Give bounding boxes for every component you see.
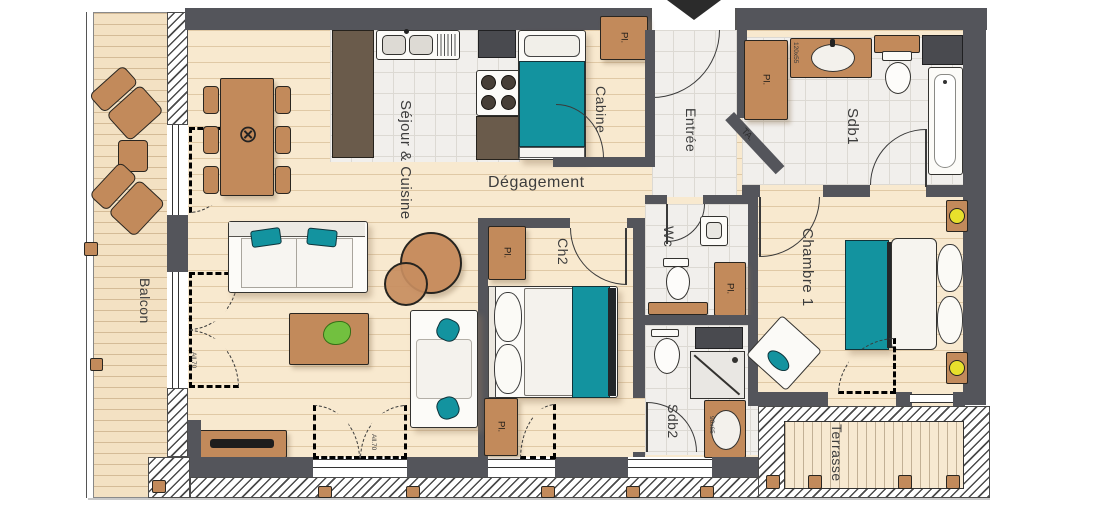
wall (188, 457, 313, 477)
post (626, 486, 640, 498)
wall (185, 8, 652, 30)
room-label-balcon: Balcon (138, 278, 152, 324)
plant (323, 321, 351, 345)
bed-blanket (845, 240, 889, 350)
sofa-bed (410, 310, 478, 428)
floor-plan: Pl. Cabine TA. Entrée Pl. 120x55 Sdb1 Dé… (0, 0, 1100, 510)
pillow (937, 296, 963, 344)
plan-boundary (88, 498, 990, 500)
lamp (949, 360, 965, 376)
toilet-tank (882, 51, 912, 61)
ceiling-light-icon: ⊗ (234, 120, 262, 149)
door-jamb (650, 8, 652, 30)
bathtub (928, 67, 963, 175)
wall (953, 392, 965, 406)
wall (645, 315, 758, 325)
sofa-back (229, 222, 365, 237)
room-label-cabine: Cabine (594, 86, 608, 133)
pillow (937, 244, 963, 292)
sink (811, 44, 855, 72)
closet-label: Pl. (725, 283, 736, 294)
wall (555, 457, 628, 477)
room-label-entree: Entrée (684, 108, 698, 152)
faucet (830, 39, 835, 47)
door-leaf (759, 197, 761, 257)
sink (711, 410, 741, 450)
closet: Pl. (600, 16, 648, 60)
hatched-wall (190, 477, 768, 498)
wall (926, 185, 963, 197)
wall (407, 457, 488, 477)
post (318, 486, 332, 498)
window-glazing (172, 272, 179, 388)
post (898, 475, 912, 489)
toilet-tank (663, 258, 689, 267)
post (808, 475, 822, 489)
room-label-sejour: Séjour & Cuisine (398, 100, 413, 220)
post (541, 486, 555, 498)
duvet (891, 238, 937, 350)
closet-label: Pl. (496, 421, 507, 432)
shower-head (732, 357, 738, 363)
toilet-tank (651, 329, 679, 337)
wall (645, 30, 655, 157)
drain (943, 80, 947, 84)
room-label-sdb1: Sdb1 (845, 108, 860, 145)
wall (823, 185, 870, 197)
wall (188, 420, 201, 457)
closet: Pl. (744, 40, 788, 120)
bathtub-basin (934, 74, 956, 168)
sink-basin (382, 35, 406, 55)
stove (476, 70, 522, 116)
counter (648, 302, 708, 315)
washbasin (700, 216, 728, 246)
door-leaf (925, 129, 927, 187)
railing-bracket (90, 358, 103, 371)
room-label-degagement: Dégagement (488, 174, 585, 192)
wall (633, 218, 645, 398)
room-label-chambre1: Chambre 1 (800, 228, 815, 307)
tv-console (199, 430, 287, 458)
closet-label: Pl. (502, 247, 513, 258)
room-label-terrasse: Terrasse (830, 424, 844, 482)
wall (712, 457, 758, 477)
lamp (949, 208, 965, 224)
tv (210, 439, 274, 448)
dining-chair (275, 86, 291, 114)
wall (167, 215, 188, 272)
burner (481, 95, 496, 110)
post (766, 475, 780, 489)
burner (481, 75, 496, 90)
window (488, 459, 555, 468)
entrance-arrow-icon (667, 0, 721, 20)
kitchen-counter (332, 30, 374, 158)
vanity-dimension: 90x65 (708, 416, 715, 434)
hatched-wall (167, 388, 188, 457)
chair-cushion (764, 346, 793, 375)
dining-chair (203, 86, 219, 114)
wall (553, 157, 655, 167)
closet: Pl. (714, 262, 746, 316)
duvet (524, 288, 574, 396)
sill-height-label: All.70 (190, 352, 197, 368)
vanity (790, 38, 872, 78)
sofa (228, 221, 368, 293)
window (910, 394, 955, 403)
throw-pillow (306, 227, 338, 247)
railing-bracket (84, 242, 98, 256)
door-leaf (625, 228, 627, 285)
closet-label: Pl. (761, 74, 772, 85)
wall (737, 8, 987, 30)
shower (690, 351, 745, 399)
wall (748, 392, 828, 406)
sill-height-label: All.70 (370, 434, 377, 450)
post (946, 475, 960, 489)
kitchen-appliance (478, 30, 516, 58)
faucet (404, 29, 409, 34)
kitchen-counter (476, 116, 520, 160)
door-jamb (735, 8, 737, 30)
mattress (416, 339, 472, 399)
dining-chair (275, 166, 291, 194)
kitchen-sink (376, 30, 460, 60)
door-leaf (646, 402, 648, 452)
bathroom-cabinet (922, 35, 963, 65)
window (628, 459, 712, 468)
pillow (524, 35, 580, 57)
post (700, 486, 714, 498)
room-label-ch2: Ch2 (556, 238, 570, 265)
room-label-wc: Wc (662, 226, 676, 247)
dining-chair (203, 166, 219, 194)
dining-chair (203, 126, 219, 154)
cushion-divider (296, 238, 297, 288)
window-glazing (172, 125, 179, 215)
round-table (384, 262, 428, 306)
pillow (494, 344, 522, 394)
bathroom-cabinet (695, 327, 743, 349)
bed-edge (608, 288, 616, 396)
burner (501, 95, 516, 110)
closet: Pl. (484, 398, 518, 456)
post (152, 480, 166, 493)
coffee-table (289, 313, 369, 365)
wall (645, 195, 667, 204)
closet: Pl. (488, 226, 526, 280)
window (313, 459, 407, 468)
basin (706, 222, 722, 239)
pillow (494, 292, 522, 342)
closet-label: Pl. (619, 32, 630, 43)
sink-drainer (437, 34, 457, 56)
burner (501, 75, 516, 90)
post (406, 486, 420, 498)
vanity-dimension: 120x55 (792, 42, 799, 63)
sink-basin (409, 35, 433, 55)
wall (627, 218, 645, 228)
wall (633, 452, 645, 457)
dining-chair (275, 126, 291, 154)
bed-blanket (572, 286, 610, 398)
